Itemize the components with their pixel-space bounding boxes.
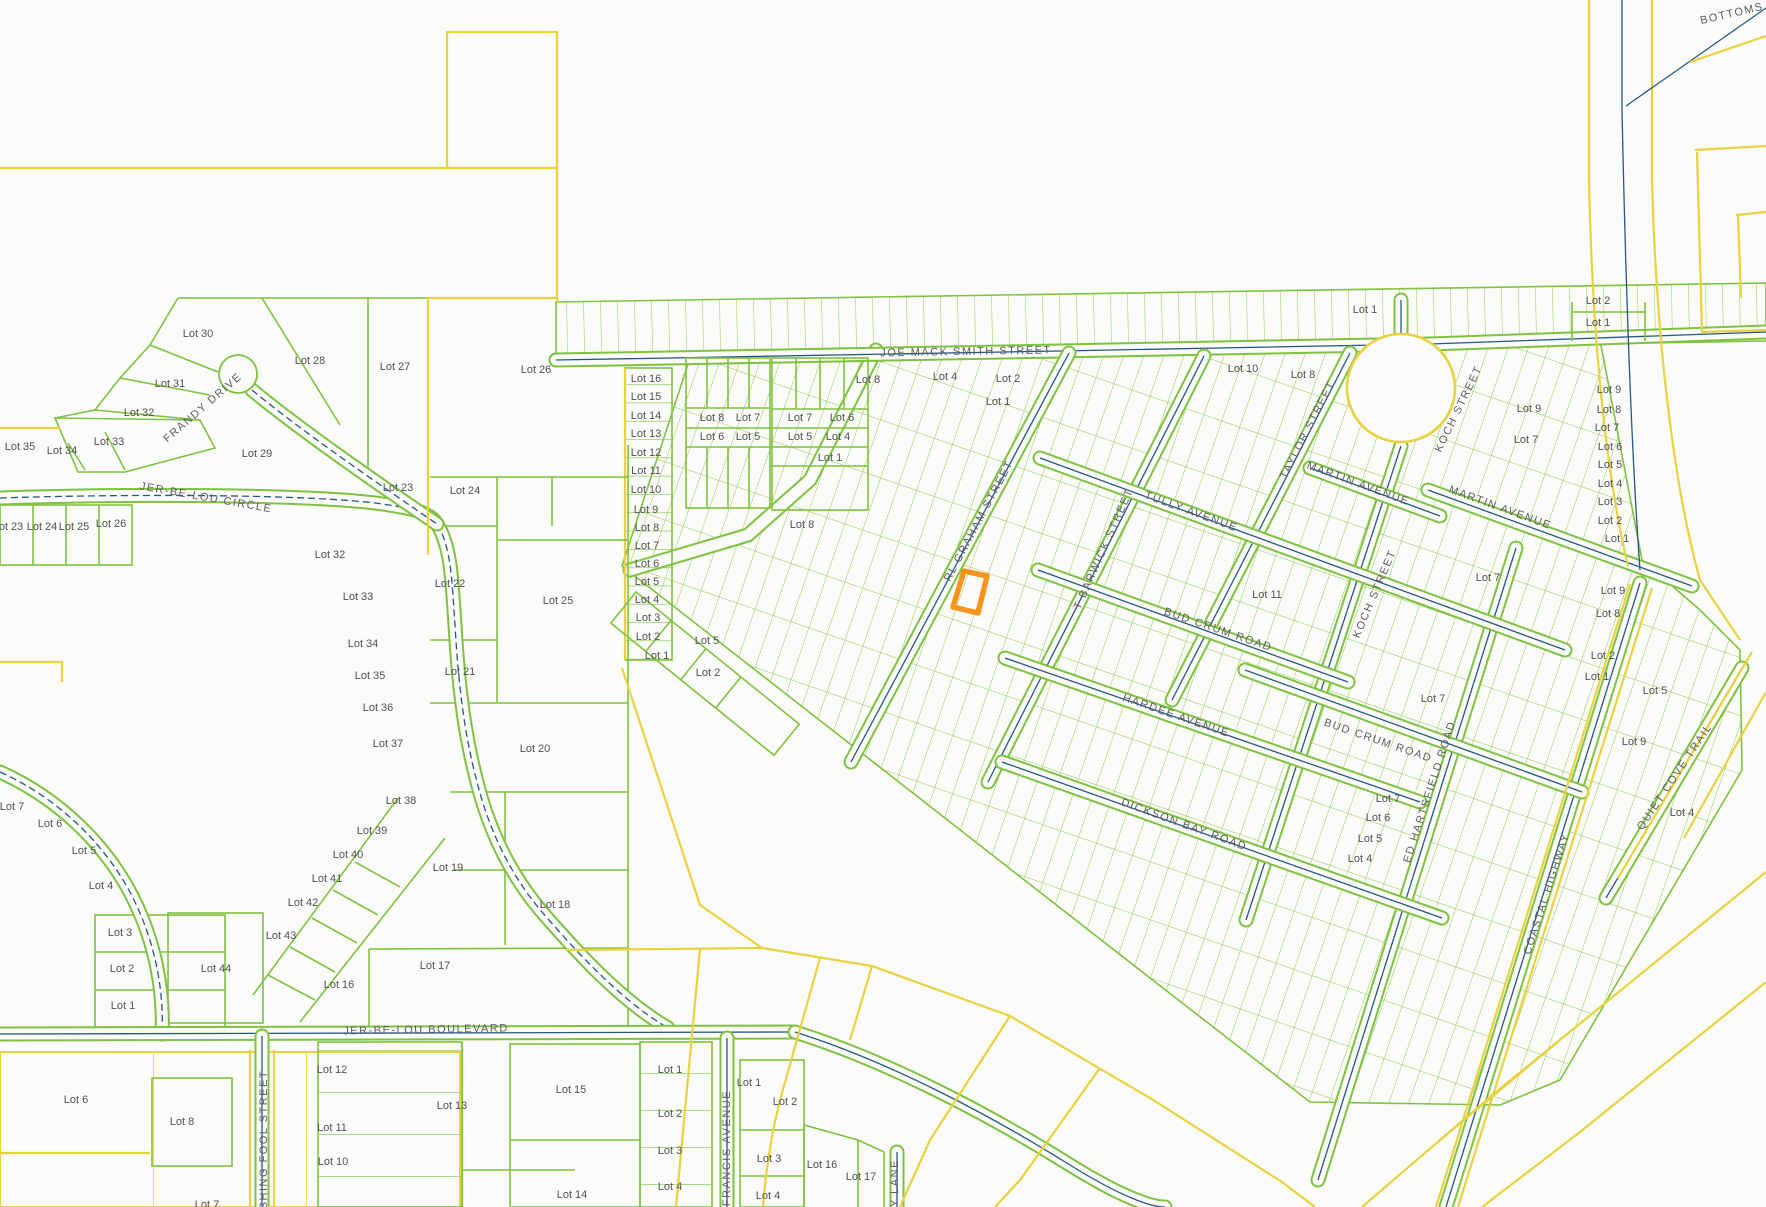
lot-label: Lot 9 — [634, 504, 658, 516]
lot-label: Lot 5 — [72, 845, 96, 857]
lot-label: Lot 1 — [658, 1064, 682, 1076]
map-viewport[interactable]: JOE MACK SMITH STREETFRANDY DRIVEJER-BE-… — [0, 0, 1766, 1207]
lot-label: Lot 1 — [1605, 533, 1629, 545]
lot-label: Lot 9 — [1622, 736, 1646, 748]
lot-label: Lot 4 — [635, 594, 659, 606]
lot-label: Lot 27 — [380, 361, 411, 373]
lot-label: Lot 1 — [111, 1000, 135, 1012]
lot-label: Lot 11 — [317, 1122, 347, 1134]
lot-label: Lot 4 — [658, 1181, 682, 1193]
lot-label: Lot 19 — [433, 862, 464, 874]
lot-label: Lot 1 — [645, 650, 669, 662]
lot-label: Lot 12 — [317, 1064, 348, 1076]
lot-label: Lot 30 — [183, 328, 214, 340]
street-label: BOTTOMS — [1699, 1, 1765, 27]
lot-label: Lot 3 — [658, 1145, 682, 1157]
lot-label: Lot 2 — [1598, 515, 1622, 527]
lot-label: Lot 21 — [445, 666, 476, 678]
lot-label: Lot 7 — [788, 412, 812, 424]
lot-label: Lot 4 — [756, 1190, 780, 1202]
lot-label: Lot 33 — [343, 591, 374, 603]
lot-label: Lot 17 — [420, 960, 451, 972]
lot-label: Lot 24 — [27, 521, 58, 533]
lot-label: Lot 8 — [700, 412, 724, 424]
lot-label: Lot 7 — [1476, 572, 1500, 584]
lot-label: Lot 5 — [635, 576, 659, 588]
lot-label: Lot 7 — [0, 801, 24, 813]
lot-label: Lot 8 — [170, 1116, 194, 1128]
lot-label: Lot 11 — [1252, 589, 1282, 601]
lot-label: Lot 38 — [386, 795, 417, 807]
lot-label: Lot 28 — [295, 355, 326, 367]
lot-label: Lot 22 — [435, 578, 466, 590]
lot-label: Lot 2 — [996, 373, 1020, 385]
lot-label: Lot 44 — [201, 963, 232, 975]
lot-label: Lot 23 — [0, 521, 23, 533]
lot-label: Lot 6 — [38, 818, 62, 830]
lot-label: Lot 9 — [1601, 585, 1625, 597]
lot-label: Lot 14 — [631, 410, 662, 422]
lot-label: Lot 1 — [737, 1077, 761, 1089]
lot-label: Lot 42 — [288, 897, 319, 909]
lot-label: Lot 4 — [1670, 807, 1694, 819]
lot-label: Lot 14 — [557, 1189, 588, 1201]
street-label: LACY LANE — [889, 1159, 901, 1207]
lot-label: Lot 10 — [318, 1156, 349, 1168]
lot-label: Lot 4 — [826, 431, 850, 443]
street-label: FRANCIS AVENUE — [721, 1090, 733, 1206]
lot-label: Lot 2 — [658, 1108, 682, 1120]
lot-label: Lot 37 — [373, 738, 404, 750]
lot-label: Lot 10 — [1228, 363, 1259, 375]
lot-label: Lot 3 — [1598, 496, 1622, 508]
lot-label: Lot 8 — [1291, 369, 1315, 381]
lot-label: Lot 7 — [736, 412, 760, 424]
lot-label: Lot 6 — [830, 412, 854, 424]
lot-label: Lot 8 — [635, 522, 659, 534]
lot-label: Lot 4 — [933, 371, 957, 383]
lot-label: Lot 15 — [556, 1084, 587, 1096]
lot-label: Lot 33 — [94, 436, 125, 448]
lot-label: Lot 7 — [635, 540, 659, 552]
lot-label: Lot 2 — [1591, 650, 1615, 662]
roundabout — [1347, 334, 1455, 442]
lot-label: Lot 3 — [108, 927, 132, 939]
lot-label: Lot 35 — [5, 441, 36, 453]
lot-label: Lot 24 — [450, 485, 481, 497]
lot-label: Lot 1 — [986, 396, 1010, 408]
lot-label: Lot 36 — [363, 702, 394, 714]
lot-label: Lot 17 — [846, 1171, 877, 1183]
lot-label: Lot 16 — [324, 979, 355, 991]
lot-label: Lot 8 — [1596, 608, 1620, 620]
lot-label: Lot 3 — [757, 1153, 781, 1165]
lot-label: Lot 6 — [1366, 812, 1390, 824]
parcel-grid — [556, 283, 1766, 1105]
parcel-map[interactable]: JOE MACK SMITH STREETFRANDY DRIVEJER-BE-… — [0, 0, 1766, 1207]
bottom-left-blocks — [0, 1042, 884, 1207]
lot-label: Lot 6 — [635, 558, 659, 570]
lot-label: Lot 5 — [1598, 459, 1622, 471]
lot-label: Lot 7 — [195, 1199, 219, 1207]
lot-label: Lot 6 — [1598, 441, 1622, 453]
lot-label: Lot 2 — [110, 963, 134, 975]
lot-label: Lot 10 — [631, 484, 662, 496]
lot-label: Lot 40 — [333, 849, 364, 861]
lot-label: Lot 34 — [348, 638, 379, 650]
lot-label: Lot 25 — [59, 521, 90, 533]
midleft-large-lots — [369, 445, 628, 1030]
lot-label: Lot 7 — [1514, 434, 1538, 446]
lot-label: Lot 7 — [1376, 793, 1400, 805]
lot-label: Lot 29 — [242, 448, 273, 460]
lot-label: Lot 4 — [1598, 478, 1622, 490]
lot-label: Lot 20 — [520, 743, 551, 755]
lot-label: Lot 32 — [124, 407, 155, 419]
lot-label: Lot 4 — [89, 880, 113, 892]
lot-label: Lot 6 — [700, 431, 724, 443]
lot-label: Lot 16 — [807, 1159, 838, 1171]
lot-label: Lot 23 — [383, 482, 414, 494]
street-label: FISHING FOOL STREET — [258, 1070, 270, 1207]
lot-label: Lot 31 — [155, 378, 186, 390]
lot-label: Lot 1 — [1353, 304, 1377, 316]
lot-label: Lot 4 — [1348, 853, 1372, 865]
lot-label: Lot 35 — [355, 670, 386, 682]
lot-label: Lot 13 — [437, 1100, 468, 1112]
lot-label: Lot 5 — [1643, 685, 1667, 697]
lot-label: Lot 3 — [636, 612, 660, 624]
lot-label: Lot 15 — [631, 391, 662, 403]
lot-label: Lot 9 — [1517, 403, 1541, 415]
lot-label: Lot 43 — [266, 930, 297, 942]
lot-label: Lot 18 — [540, 899, 571, 911]
lot-label: Lot 5 — [788, 431, 812, 443]
lot-label: Lot 26 — [96, 518, 127, 530]
lot-label: Lot 8 — [1597, 404, 1621, 416]
lot-label: Lot 1 — [818, 452, 842, 464]
lot-label: Lot 41 — [312, 873, 343, 885]
lot-label: Lot 9 — [1597, 384, 1621, 396]
lot-label: Lot 32 — [315, 549, 346, 561]
lot-label: Lot 11 — [631, 465, 661, 477]
lot-label: Lot 2 — [636, 631, 660, 643]
lot-label: Lot 6 — [64, 1094, 88, 1106]
lot-label: Lot 2 — [696, 667, 720, 679]
lot-label: Lot 1 — [1586, 317, 1610, 329]
lot-label: Lot 26 — [521, 364, 552, 376]
lot-label: Lot 13 — [631, 428, 662, 440]
lot-label: Lot 16 — [631, 373, 662, 385]
lot-label: Lot 8 — [856, 374, 880, 386]
lot-label: Lot 1 — [1585, 671, 1609, 683]
lot-label: Lot 5 — [736, 431, 760, 443]
lot-label: Lot 39 — [357, 825, 388, 837]
lot-label: Lot 34 — [47, 445, 78, 457]
lot-label: Lot 2 — [1586, 295, 1610, 307]
lot-label: Lot 2 — [773, 1096, 797, 1108]
lot-label: Lot 5 — [695, 635, 719, 647]
lot-label: Lot 25 — [543, 595, 574, 607]
lot-label: Lot 8 — [790, 519, 814, 531]
lot-label: Lot 5 — [1358, 833, 1382, 845]
lot-label: Lot 7 — [1595, 422, 1619, 434]
lot-label: Lot 7 — [1421, 693, 1445, 705]
lot-label: Lot 12 — [631, 447, 662, 459]
